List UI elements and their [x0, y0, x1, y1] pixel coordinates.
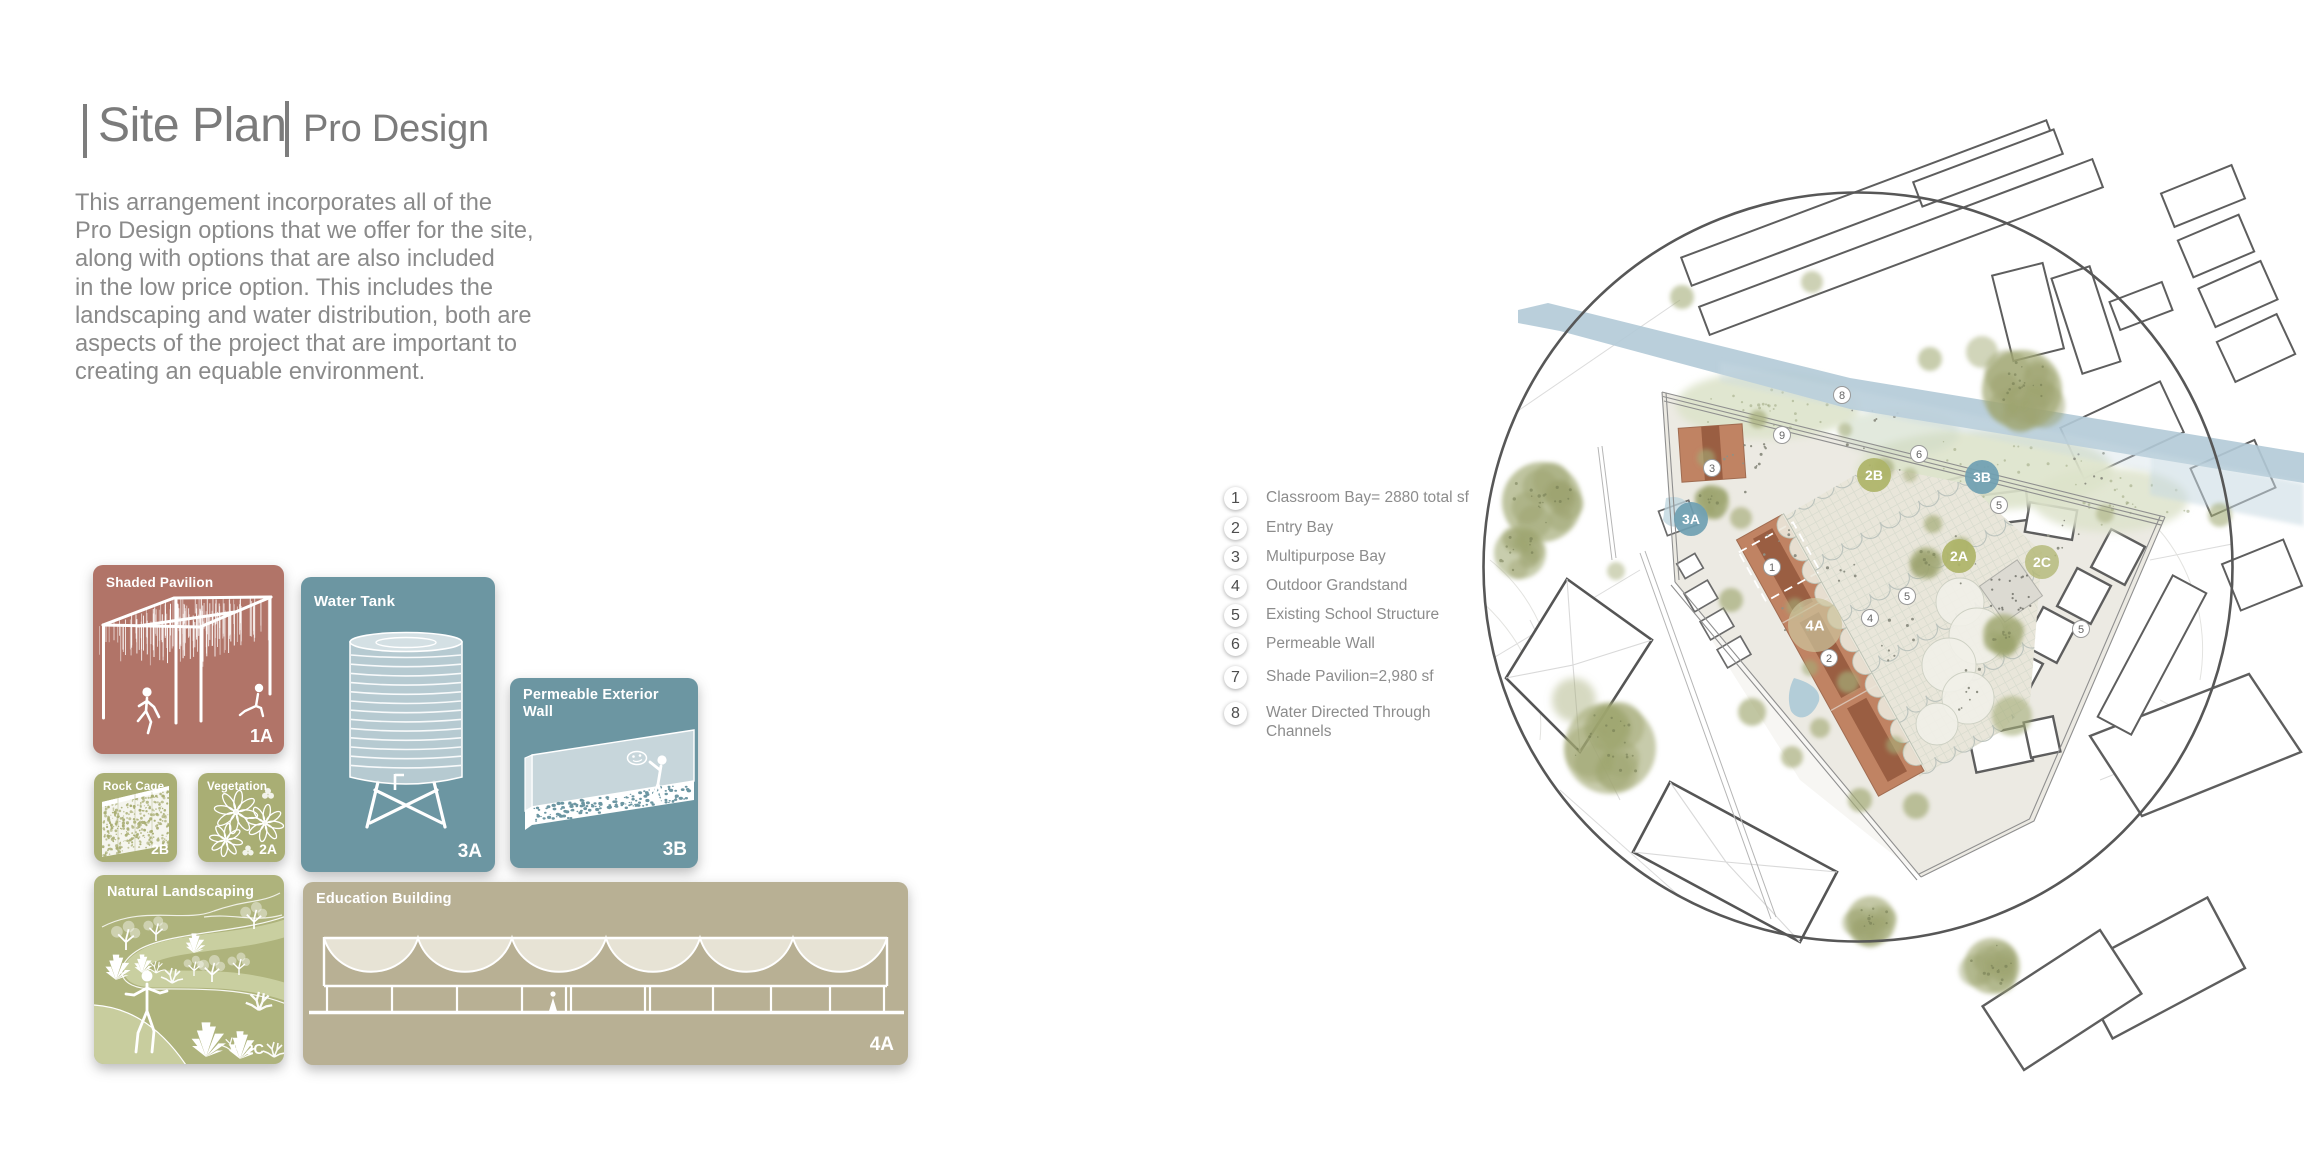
- svg-text:2: 2: [1826, 653, 1832, 665]
- svg-text:5: 5: [2078, 624, 2084, 636]
- svg-text:5: 5: [1996, 500, 2002, 512]
- svg-text:5: 5: [1904, 591, 1910, 603]
- svg-text:9: 9: [1779, 430, 1785, 442]
- svg-text:3B: 3B: [1973, 469, 1991, 485]
- svg-text:2A: 2A: [1950, 548, 1968, 564]
- svg-text:6: 6: [1916, 449, 1922, 461]
- svg-text:1: 1: [1769, 562, 1775, 574]
- svg-text:3: 3: [1709, 463, 1715, 475]
- svg-text:4A: 4A: [1805, 617, 1824, 634]
- svg-text:2B: 2B: [1865, 467, 1883, 483]
- svg-text:2C: 2C: [2033, 554, 2051, 570]
- svg-text:3A: 3A: [1682, 511, 1700, 527]
- svg-text:4: 4: [1867, 613, 1873, 625]
- svg-text:8: 8: [1839, 390, 1845, 402]
